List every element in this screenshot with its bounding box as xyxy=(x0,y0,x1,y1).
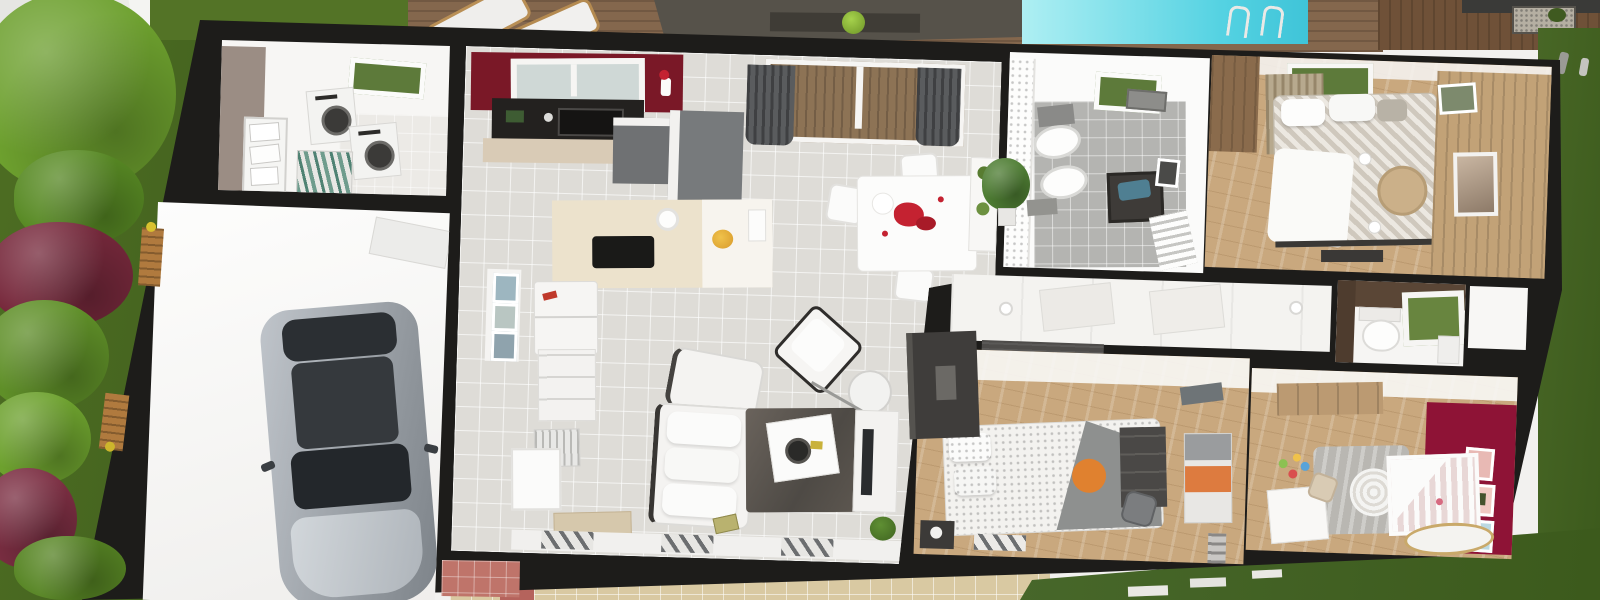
pool-ladder-rail-2 xyxy=(1260,5,1285,39)
room-storage xyxy=(1468,286,1528,350)
shelf-bin-1 xyxy=(249,122,280,142)
tall-cabinet-column xyxy=(667,110,744,208)
laundry-skylight xyxy=(348,57,427,99)
washer-door-icon xyxy=(320,104,353,137)
room-bathroom xyxy=(1003,52,1210,273)
floor-plant-small xyxy=(870,516,897,541)
frames-wall-strip xyxy=(485,269,522,362)
room-garage xyxy=(143,202,450,600)
sofa-cushion-2 xyxy=(664,447,740,484)
paper-towel-roll xyxy=(656,208,679,231)
dining-plant xyxy=(982,158,1032,230)
room-nursery xyxy=(1246,368,1518,559)
island-flowers xyxy=(712,230,733,249)
b2-wardrobe-orange-band xyxy=(1185,466,1231,492)
master-pillow-1 xyxy=(1281,99,1325,127)
master-frame-small xyxy=(1438,82,1478,115)
car-windshield xyxy=(290,443,412,511)
b2-wardrobe xyxy=(1184,433,1232,523)
pool-ladder-rail-1 xyxy=(1226,5,1251,39)
shelf-bin-3 xyxy=(250,166,279,186)
wc-brown-wall-left xyxy=(1335,280,1356,363)
sofa-cushion-1 xyxy=(666,411,742,448)
car xyxy=(258,299,441,600)
master-pillow-2 xyxy=(1329,94,1375,122)
drawer-unit xyxy=(538,349,596,421)
wall-shelf-towels xyxy=(1126,89,1168,112)
sideboard-handle xyxy=(935,366,956,401)
sink-faucet-icon xyxy=(544,113,553,122)
b2-photo-shelf xyxy=(1207,533,1226,564)
dryer-slot xyxy=(358,129,380,135)
wall-frame-3 xyxy=(491,331,518,362)
master-bench-dark xyxy=(1321,250,1383,262)
coffee-bowl xyxy=(783,436,812,465)
nursery-wardrobe-top xyxy=(1277,382,1384,416)
petal-dot-2 xyxy=(938,196,944,202)
b2-cut-window xyxy=(974,534,1026,552)
coffee-table xyxy=(766,414,840,483)
floorplan-render xyxy=(0,0,1600,600)
dining-table xyxy=(857,175,978,272)
shelf-bin-2 xyxy=(249,144,281,165)
kitchen-cart xyxy=(511,448,561,510)
wall-frame-2 xyxy=(492,303,519,332)
fridge-door-line xyxy=(535,316,597,318)
master-sheet-fold xyxy=(1267,148,1355,249)
towel-gray-1 xyxy=(1037,104,1075,128)
wire-shelving xyxy=(242,117,288,196)
curtain-right xyxy=(915,67,961,146)
car-roof xyxy=(291,356,400,450)
dining-plant-foliage xyxy=(982,158,1030,210)
sofa xyxy=(648,402,757,530)
deck-plant xyxy=(842,11,865,34)
paver-1 xyxy=(1128,585,1168,596)
room-laundry xyxy=(218,40,450,196)
tv-stand xyxy=(852,410,899,513)
dryer-door-icon xyxy=(363,139,396,172)
shrub-green-bottom xyxy=(14,536,126,600)
crib-canopy xyxy=(1390,458,1450,524)
cut-window-2 xyxy=(661,534,714,554)
garage-ceiling-vent xyxy=(369,217,450,269)
wc-cabinet xyxy=(1437,336,1460,365)
coffee-item xyxy=(810,441,822,450)
island-cooktop xyxy=(592,236,654,268)
dining-plant-pot xyxy=(998,208,1016,226)
floor-books xyxy=(713,514,740,535)
cut-window-1 xyxy=(541,530,594,550)
dryer xyxy=(349,122,402,180)
paver-3 xyxy=(1252,569,1282,579)
wc-toilet xyxy=(1362,319,1401,352)
room-master-bedroom xyxy=(1205,55,1552,279)
master-frame-large xyxy=(1453,152,1498,217)
petal-dot xyxy=(882,231,888,237)
wall-frame-1 xyxy=(492,273,519,304)
b2-wardrobe-gray-top xyxy=(1185,434,1231,460)
washer-slot xyxy=(315,94,337,100)
b2-wall-shelf xyxy=(1180,382,1224,405)
door-mullion xyxy=(855,67,864,129)
toy-3 xyxy=(1279,459,1288,468)
b2-nightstand xyxy=(920,520,955,549)
master-pillow-accent xyxy=(1377,99,1407,122)
b2-lamp xyxy=(930,526,942,538)
red-petals-2 xyxy=(916,216,936,230)
fridge-items-red xyxy=(542,291,557,301)
toy-1 xyxy=(1288,469,1297,478)
island-towel xyxy=(748,209,766,241)
toy-4 xyxy=(1293,453,1301,461)
room-entry xyxy=(441,560,520,597)
living-rug xyxy=(746,408,859,513)
master-wood-pillar xyxy=(1209,55,1260,153)
room-wc xyxy=(1335,280,1466,366)
sofa-cushion-3 xyxy=(661,483,737,520)
hall-downlight-4 xyxy=(1289,301,1303,315)
kitchen-flower-vase xyxy=(661,78,672,96)
tv-screen-icon xyxy=(861,429,874,495)
toy-2 xyxy=(1300,462,1309,471)
crib-dot-pink xyxy=(1436,498,1443,505)
drying-rack xyxy=(296,150,353,195)
fridge xyxy=(534,281,598,355)
kitchen-window-mullion xyxy=(571,64,577,96)
curtain-left xyxy=(745,64,795,145)
gravel-plants xyxy=(1548,8,1566,22)
basket-towels-blue xyxy=(1117,179,1151,201)
hall-ceiling-panel-2 xyxy=(1149,284,1225,336)
paver-2 xyxy=(1190,577,1226,587)
armchair-2-cushion xyxy=(788,316,847,375)
green-board xyxy=(506,110,524,122)
garden-bench-1 xyxy=(138,227,164,286)
hall-ceiling-panel xyxy=(1039,282,1115,332)
hall-downlight-1 xyxy=(999,301,1013,315)
b2-pillow-2 xyxy=(954,466,997,496)
bath-picture-frame xyxy=(1155,158,1181,188)
media-sideboard xyxy=(906,331,980,439)
cut-window-3 xyxy=(781,538,834,558)
white-plate xyxy=(872,193,894,215)
kitchen-island xyxy=(552,199,772,288)
bench-flowers-1 xyxy=(146,222,157,233)
